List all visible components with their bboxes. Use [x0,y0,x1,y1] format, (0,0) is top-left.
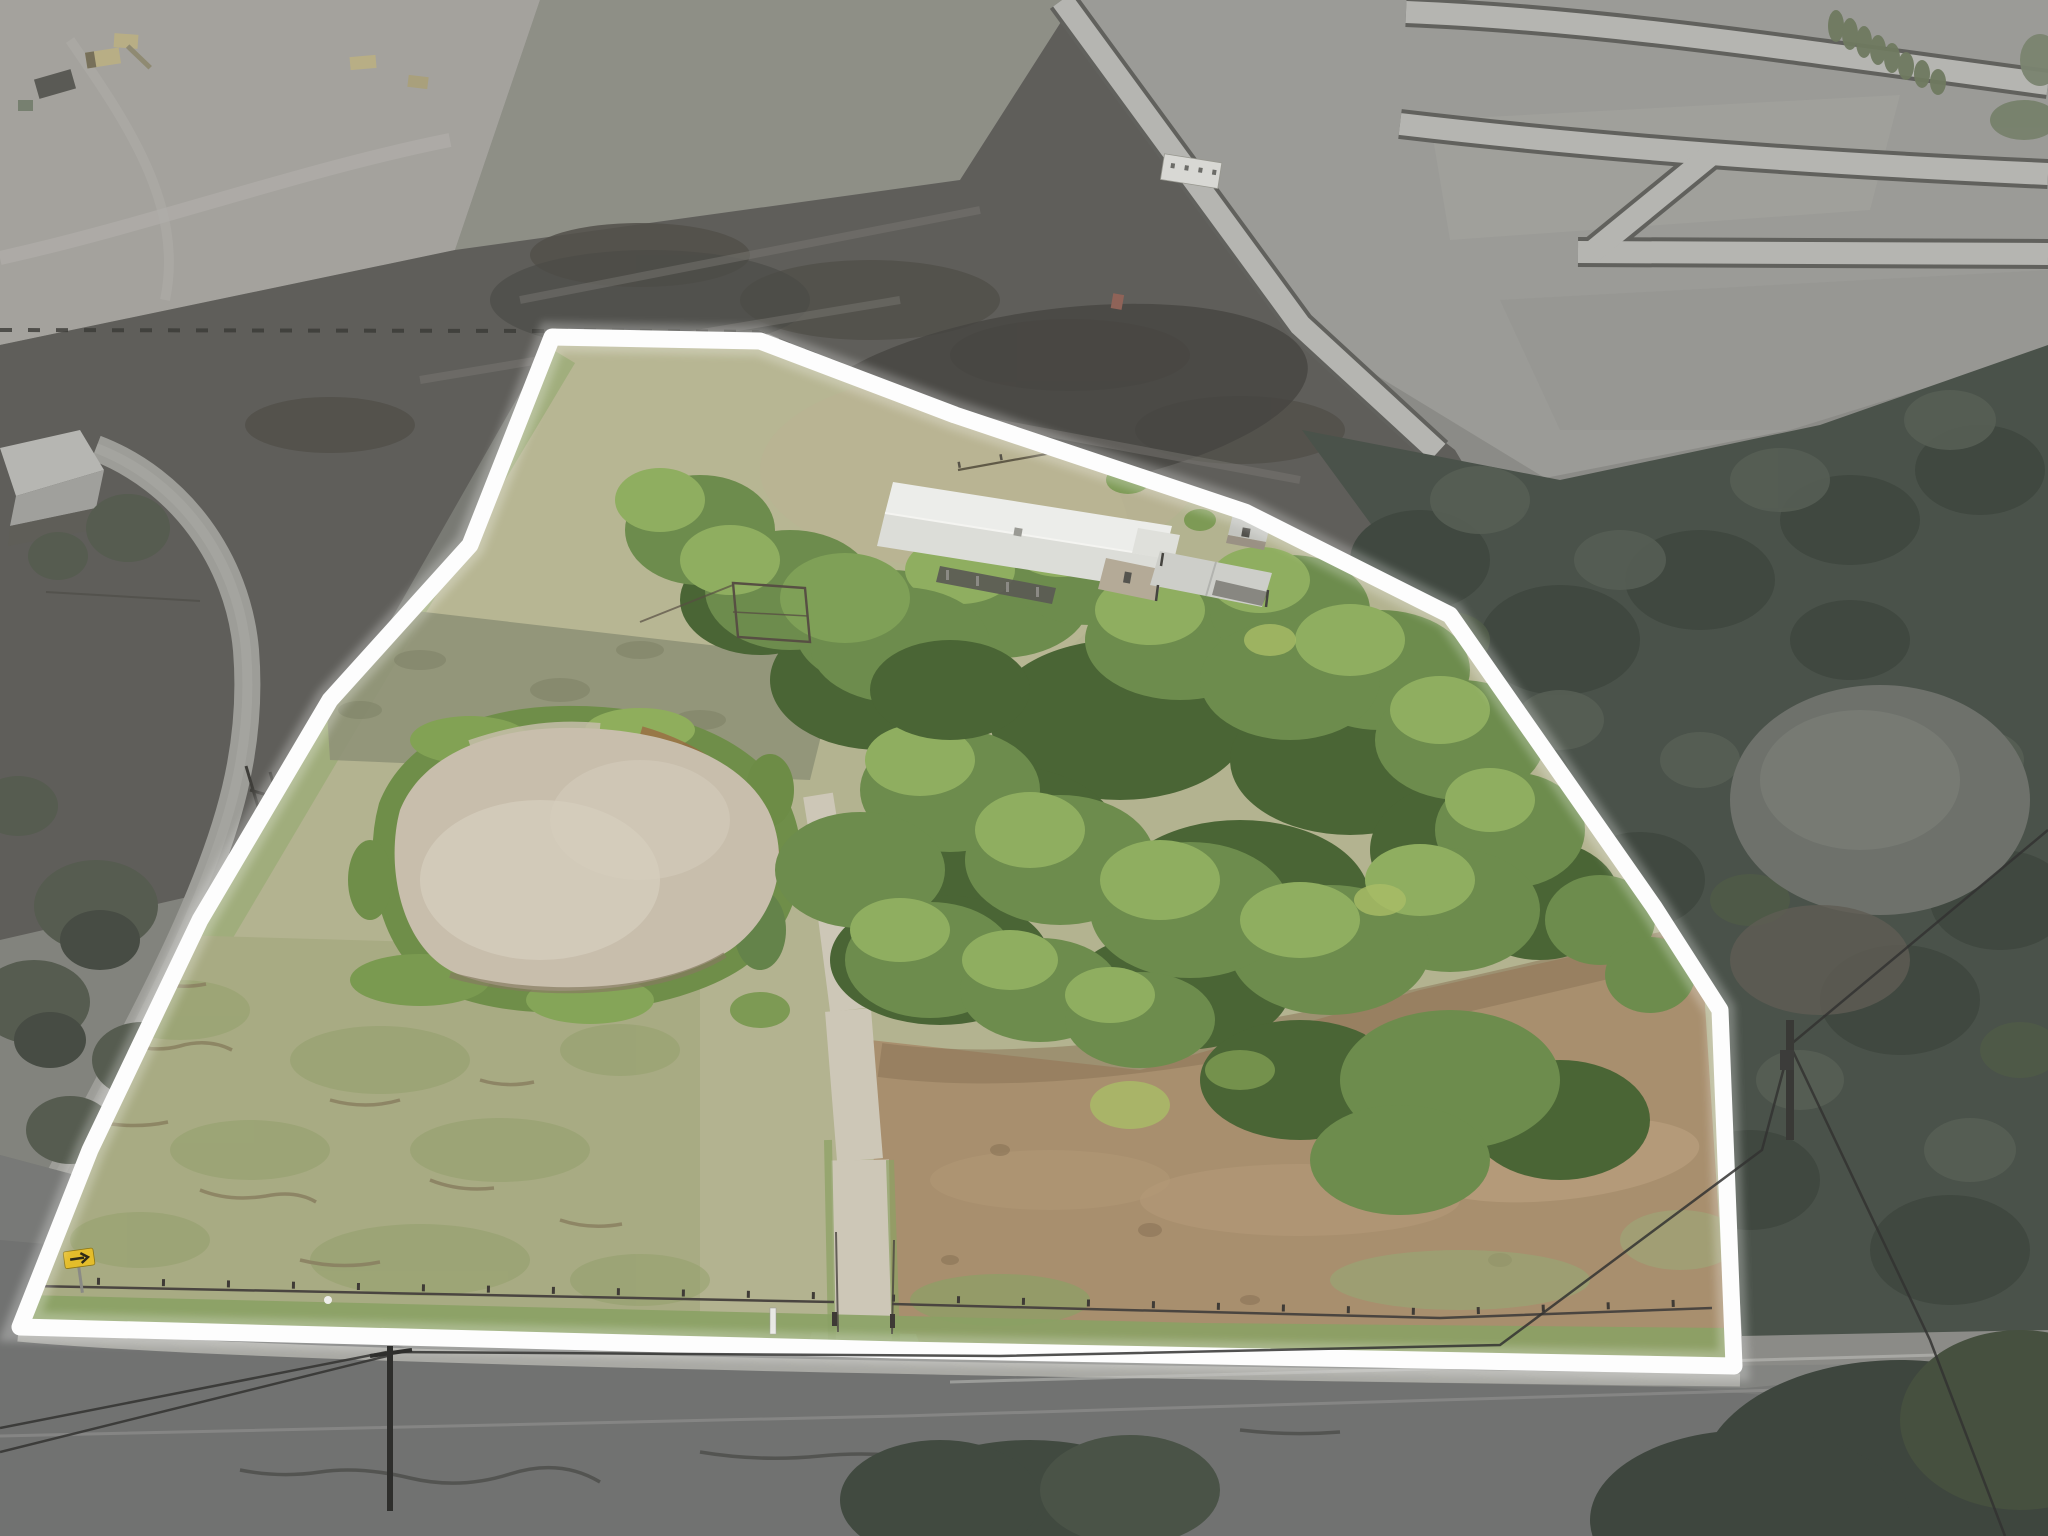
white-speck [324,1296,332,1304]
dirt-grass-patch-2 [1330,1250,1590,1310]
aerial-photo [0,0,2048,1536]
utility-pole [387,1346,393,1511]
pond-water-highlight-2 [550,760,730,880]
water-tank [18,100,33,111]
pond [348,708,794,1024]
wheel-loader [350,55,377,70]
bush [730,992,790,1028]
aerial-photo-stage [0,0,2048,1536]
farmhouse-chimney [1013,527,1022,536]
woods-floor [1730,905,1910,1015]
gate-post-right [890,1314,895,1328]
woods-clearing-center [1760,710,1960,850]
marker-post [770,1308,776,1334]
pole-transformer [1780,1050,1794,1070]
bulldozer [407,75,428,89]
gate-post-left [832,1312,837,1326]
utility-pole-right [1786,1020,1794,1140]
bush-2 [1205,1050,1275,1090]
